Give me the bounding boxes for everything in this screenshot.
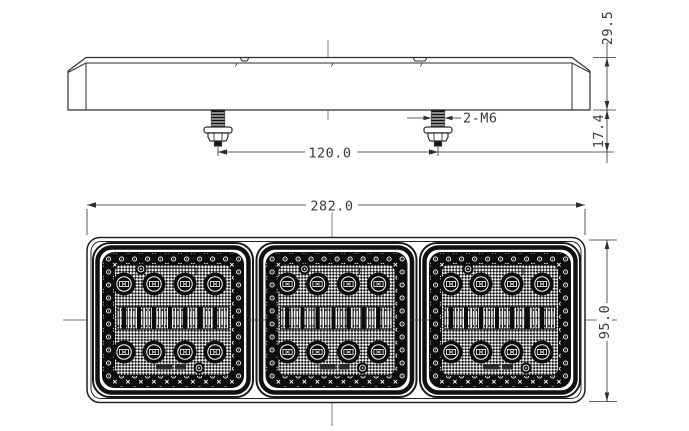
lamp-module-left: [93, 243, 253, 397]
stud-thread-callout: 2-M6: [407, 111, 498, 127]
dim-width-label: 282.0: [310, 199, 353, 215]
lamp-drawing-svg: 120.0 2-M6 29.5 17.4: [0, 0, 689, 431]
dim-stud-spacing-label: 120.0: [308, 146, 351, 162]
side-housing-body: [68, 58, 590, 111]
front-view: [63, 210, 612, 426]
technical-drawing-page: 120.0 2-M6 29.5 17.4: [0, 0, 689, 431]
lamp-module-center: [257, 243, 417, 397]
mounting-stud-left: [204, 110, 232, 146]
stud-thread-label: 2-M6: [463, 111, 498, 127]
dim-stud-length-label: 17.4: [591, 114, 607, 149]
mounting-stud-right: [424, 110, 452, 146]
dim-stud-spacing: 120.0: [218, 145, 614, 162]
side-view: [68, 40, 590, 146]
lamp-module-right: [420, 243, 580, 397]
dim-total-height-label: 29.5: [600, 11, 616, 46]
dim-width: 282.0: [87, 198, 585, 236]
dim-height-label: 95.0: [597, 305, 613, 340]
dim-total-height: 29.5: [593, 11, 616, 110]
dim-stud-length: 17.4: [591, 110, 609, 163]
dim-height: 95.0: [589, 240, 617, 402]
